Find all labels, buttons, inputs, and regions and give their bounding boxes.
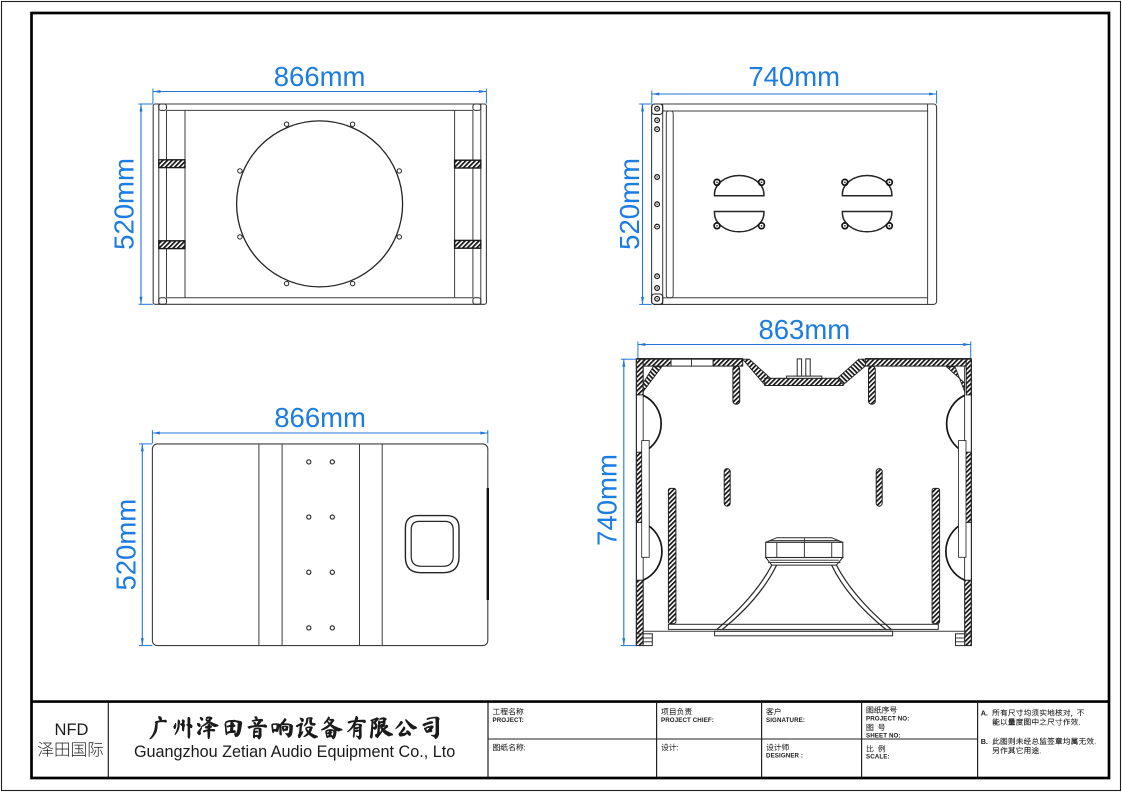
svg-text:740mm: 740mm	[591, 454, 622, 546]
svg-text:740mm: 740mm	[748, 61, 840, 92]
svg-text:SCALE:: SCALE:	[866, 754, 890, 761]
svg-text:520mm: 520mm	[111, 499, 142, 591]
svg-text:A.: A.	[981, 709, 988, 718]
svg-text:DESIGNER :: DESIGNER :	[766, 752, 803, 759]
svg-text:863mm: 863mm	[758, 314, 850, 345]
svg-text:PROJECT NO:: PROJECT NO:	[866, 715, 909, 722]
svg-text:SIGNATURE:: SIGNATURE:	[766, 717, 805, 724]
svg-text:520mm: 520mm	[614, 158, 645, 250]
svg-text:NFD: NFD	[55, 721, 89, 739]
svg-text:866mm: 866mm	[274, 402, 366, 433]
svg-text:PROJECT:: PROJECT:	[493, 717, 524, 724]
svg-text:Guangzhou Zetian Audio Equipme: Guangzhou Zetian Audio Equipment Co., Lt…	[134, 743, 455, 761]
svg-text:SHEET NO:: SHEET NO:	[866, 732, 901, 739]
svg-text:PROJECT CHIEF:: PROJECT CHIEF:	[661, 717, 714, 724]
svg-text:B.: B.	[981, 737, 988, 746]
svg-text:866mm: 866mm	[274, 61, 366, 92]
svg-text:520mm: 520mm	[109, 158, 140, 250]
